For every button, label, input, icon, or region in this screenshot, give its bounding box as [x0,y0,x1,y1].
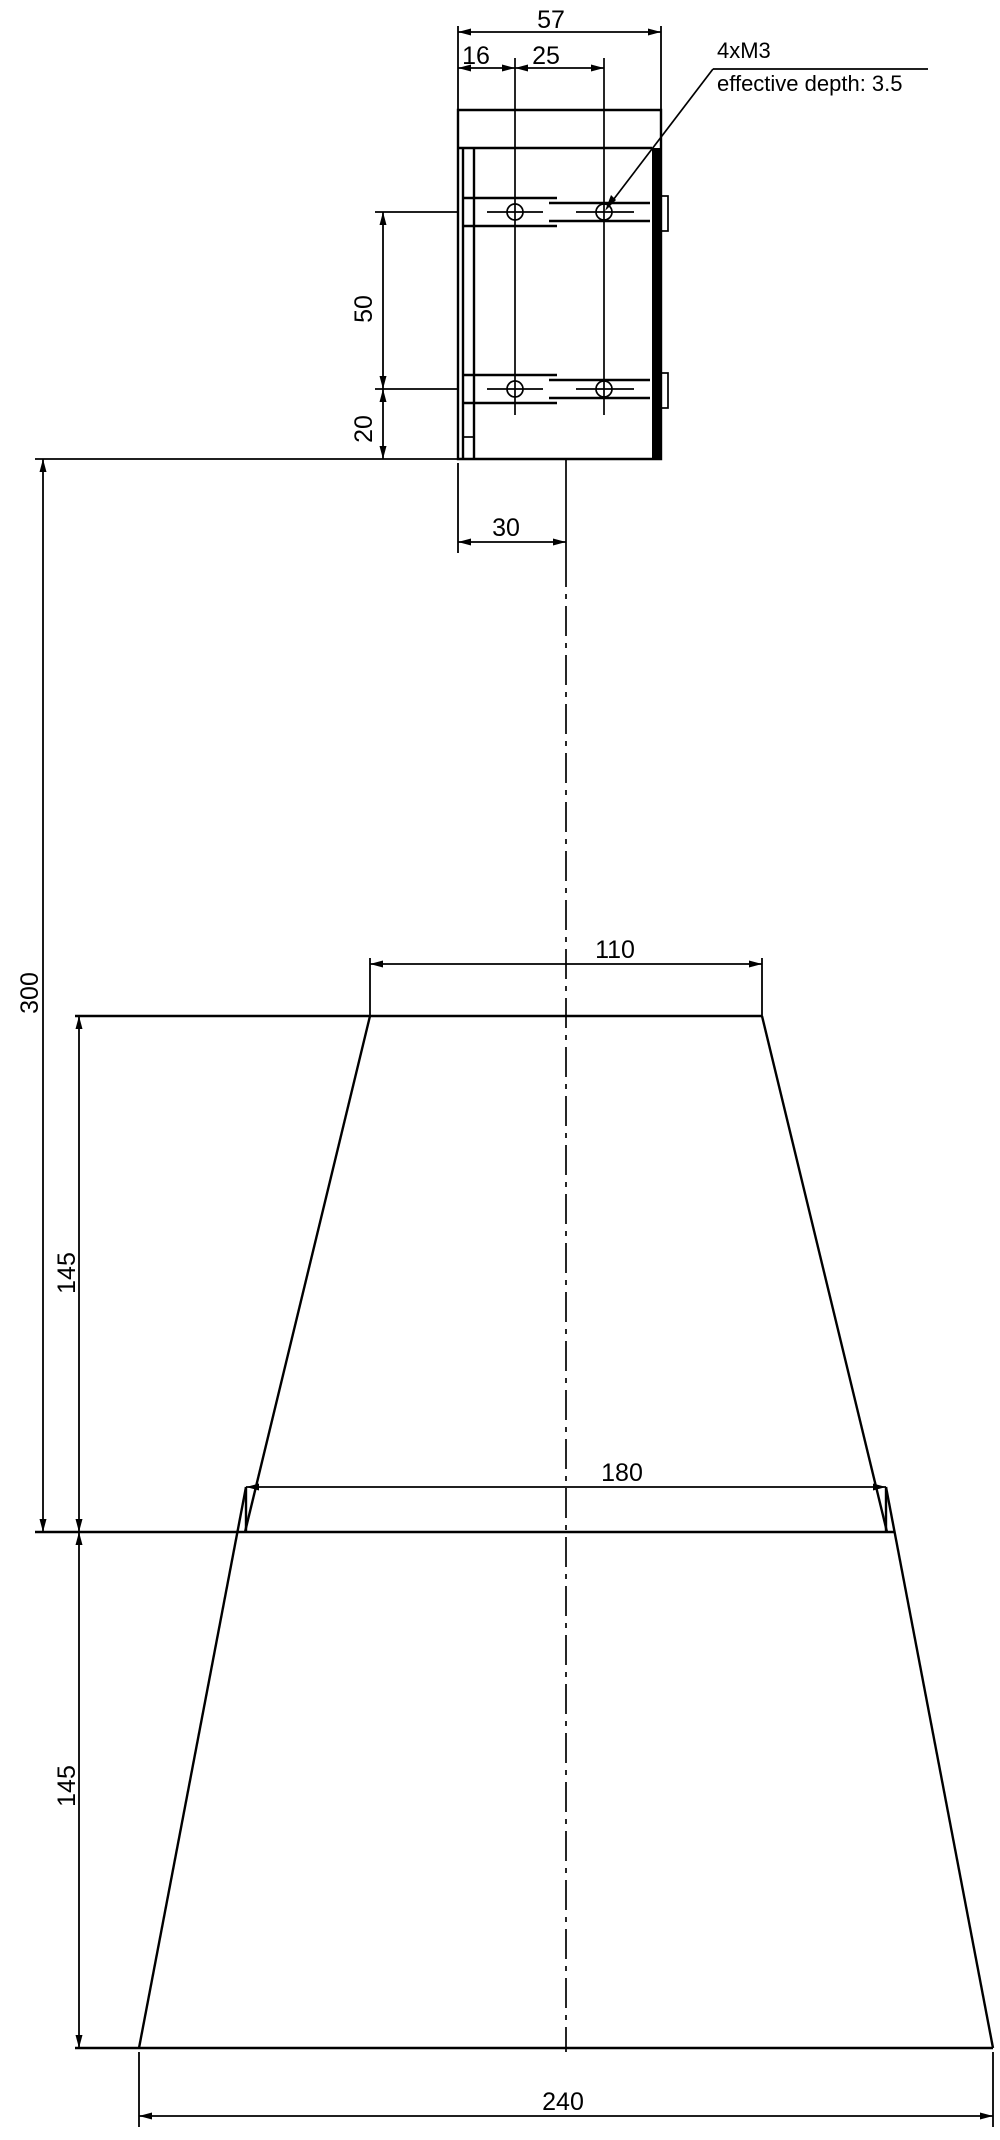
dim-arrow [873,1484,886,1491]
dim-hole-row-spacing: 50 [350,212,458,389]
thread-callout-depth-label: effective depth: 3.5 [717,71,903,96]
dim-arrow [648,29,661,36]
dim-arrow [380,212,387,225]
lampshade-technical-drawing: 57 16 25 50 20 [0,0,1000,2135]
dim-bottom-hole-offset: 20 [350,389,387,459]
dimensions: 57 16 25 50 20 [16,6,993,2127]
dim-arrow [76,1532,83,1545]
dim-arrow [380,389,387,402]
dim-arrow [591,65,604,72]
dim-overall-height-label: 300 [16,972,44,1014]
dim-arrow [370,961,383,968]
dim-bottom-width-label: 240 [542,2088,584,2116]
dim-arrow [40,1519,47,1532]
dim-arrow [139,2113,152,2120]
technical-drawing-page: 57 16 25 50 20 [0,0,1000,2135]
dim-lower-section-height: 145 [53,1532,83,2048]
dim-lower-section-height-label: 145 [53,1765,81,1807]
dim-top-width-label: 110 [595,936,635,964]
dim-arrow [76,1016,83,1029]
dim-center-offset-label: 30 [492,514,520,542]
dim-arrow [553,539,566,546]
dim-arrow [380,376,387,389]
dim-arrow [980,2113,993,2120]
dim-bracket-width-label: 57 [537,6,565,34]
lampshade-body [35,1016,993,2048]
dim-bottom-hole-offset-label: 20 [350,415,378,443]
dim-arrow [502,65,515,72]
thread-callout-size-label: 4xM3 [717,38,771,63]
dim-center-offset: 30 [458,463,566,553]
dim-arrow [458,29,471,36]
dim-arrow [76,2035,83,2048]
dim-middle-width-label: 180 [601,1459,643,1487]
dim-arrow [749,961,762,968]
upper-cone-right-side [762,1016,887,1532]
mounting-bracket [458,58,668,459]
lower-cone-left-side [139,1487,246,2048]
dim-hole-spacing-label: 25 [532,42,560,70]
dim-hole-offset-label: 16 [462,42,490,70]
dim-hole-positions: 16 25 [458,42,604,72]
dim-arrow [246,1484,259,1491]
m3-holes [487,204,634,397]
dim-arrow [380,446,387,459]
dim-arrow [76,1519,83,1532]
dim-upper-section-height-label: 145 [53,1252,81,1294]
lower-cone-right-side [886,1487,993,2048]
dim-arrow [40,459,47,472]
dim-hole-row-spacing-label: 50 [350,295,378,323]
bracket-outline [458,110,661,459]
bracket-right-wall [652,148,661,459]
upper-cone-left-side [245,1016,370,1532]
dim-arrow [515,65,528,72]
dim-upper-section-height: 145 [53,1016,83,1532]
dim-arrow [458,539,471,546]
dim-overall-height: 300 [16,459,458,1532]
dim-bottom-width: 240 [139,2052,993,2127]
